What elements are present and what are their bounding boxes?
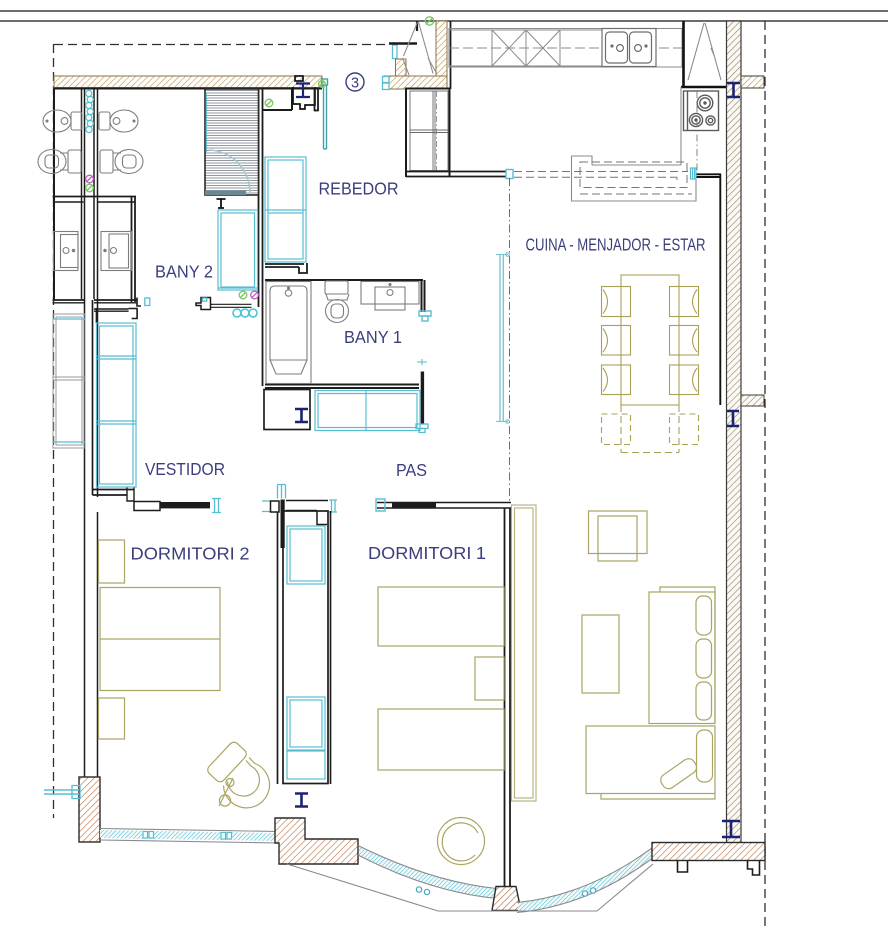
svg-text:3: 3: [351, 76, 359, 92]
svg-text:BANY 1: BANY 1: [344, 327, 402, 347]
svg-text:DORMITORI 1: DORMITORI 1: [368, 543, 486, 563]
svg-text:PAS: PAS: [396, 460, 427, 480]
svg-text:CUINA - MENJADOR - ESTAR: CUINA - MENJADOR - ESTAR: [526, 235, 706, 255]
svg-text:VESTIDOR: VESTIDOR: [145, 459, 225, 479]
svg-text:BANY 2: BANY 2: [155, 262, 213, 282]
svg-text:DORMITORI 2: DORMITORI 2: [131, 544, 250, 564]
svg-text:REBEDOR: REBEDOR: [319, 179, 399, 199]
